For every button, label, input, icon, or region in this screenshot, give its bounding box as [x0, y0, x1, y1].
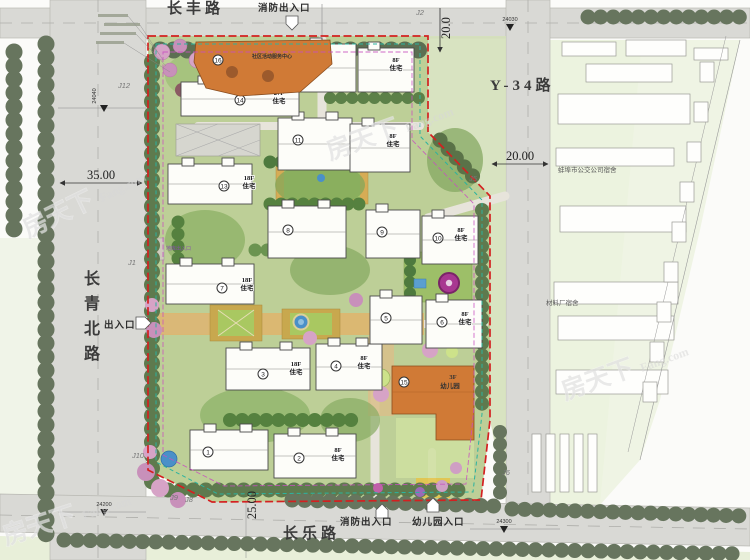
- entrance-label-north-fire: 消防出入口: [258, 2, 311, 14]
- svg-text:8F: 8F: [457, 227, 464, 234]
- junction-j9: J9: [169, 493, 179, 502]
- svg-text:20.0: 20.0: [439, 17, 453, 39]
- svg-text:住宅: 住宅: [241, 283, 255, 292]
- svg-text:25.00: 25.00: [245, 491, 259, 519]
- building-9: 9: [366, 204, 420, 258]
- building-16: 8F 住宅: [358, 42, 414, 92]
- building-3: 3 18F 住宅: [226, 342, 310, 390]
- play-pool: [161, 451, 177, 467]
- kindergarten-label: 幼儿园: [440, 381, 460, 390]
- svg-text:住宅: 住宅: [459, 317, 473, 326]
- svg-text:2: 2: [297, 456, 301, 463]
- svg-text:8F: 8F: [392, 57, 399, 64]
- dim-south: 25.00: [245, 491, 259, 519]
- junction-j5: J5: [468, 174, 478, 183]
- small-pool: [414, 279, 426, 288]
- road-label-east: Y-34路: [490, 76, 554, 94]
- building-13: 13 18F 住宅: [168, 158, 256, 204]
- road-label-south: 长乐路: [283, 524, 340, 542]
- svg-text:13: 13: [220, 184, 228, 191]
- svg-text:北: 北: [84, 320, 100, 338]
- svg-text:住宅: 住宅: [332, 453, 346, 462]
- master-plan-drawing: 蚌埠市公交公司宿舍 材料厂宿舍 1 2 8F 住宅 3 18F 住宅: [0, 0, 750, 560]
- svg-text:6: 6: [440, 320, 444, 327]
- building-10: 10 8F 住宅: [422, 210, 478, 264]
- junction-j8: J8: [184, 495, 194, 504]
- svg-text:10: 10: [434, 236, 442, 243]
- svg-text:7: 7: [220, 286, 224, 293]
- neighbor-label-bus-dorm: 蚌埠市公交公司宿舍: [558, 165, 617, 174]
- svg-text:住宅: 住宅: [290, 367, 304, 376]
- entrance-label-kindergarten: 幼儿园入口: [412, 516, 465, 528]
- svg-text:住宅: 住宅: [455, 233, 469, 242]
- building-5: 5: [370, 290, 422, 344]
- svg-text:青: 青: [84, 294, 100, 313]
- junction-j6: J6: [501, 468, 511, 477]
- svg-text:1: 1: [206, 450, 210, 457]
- svg-text:8F: 8F: [334, 447, 341, 454]
- junction-j2: J2: [415, 8, 425, 17]
- svg-text:住宅: 住宅: [358, 361, 372, 370]
- junction-j1: J1: [127, 258, 136, 267]
- svg-text:20.00: 20.00: [506, 149, 534, 163]
- playground-ring: [439, 273, 459, 293]
- svg-text:15: 15: [400, 380, 408, 387]
- building-2: 2 8F 住宅: [274, 428, 356, 478]
- svg-text:住宅: 住宅: [243, 181, 257, 190]
- svg-text:8: 8: [286, 228, 290, 235]
- site-plan: 蚌埠市公交公司宿舍 材料厂宿舍 1 2 8F 住宅 3 18F 住宅: [0, 0, 750, 560]
- junction-j12: J12: [117, 81, 131, 90]
- svg-text:8F: 8F: [360, 355, 367, 362]
- svg-text:18F: 18F: [244, 175, 255, 182]
- parking-area: [176, 124, 260, 156]
- building-7: 7 18F 住宅: [166, 258, 254, 304]
- svg-text:18F: 18F: [291, 361, 302, 368]
- svg-text:长: 长: [84, 269, 101, 288]
- community-center-label: 社区活动服务中心: [251, 53, 292, 60]
- svg-text:24300: 24300: [496, 519, 511, 525]
- svg-text:24030: 24030: [502, 17, 517, 23]
- building-1: 1: [190, 424, 268, 470]
- building-8: 8: [268, 200, 346, 258]
- svg-text:住宅: 住宅: [273, 96, 287, 105]
- road-label-north: 长丰路: [167, 0, 224, 17]
- building-4: 4 8F 住宅: [316, 338, 382, 390]
- garage-entrance-label: 地库出入口: [166, 245, 191, 252]
- neighbor-label-material-dorm: 材料厂宿舍: [546, 298, 579, 307]
- svg-text:5: 5: [384, 316, 388, 323]
- svg-text:14: 14: [236, 98, 244, 105]
- kindergarten-floors: 3F: [449, 374, 456, 381]
- entrance-label-west: 出入口: [104, 319, 136, 331]
- svg-text:16: 16: [214, 58, 222, 65]
- svg-text:8F: 8F: [461, 311, 468, 318]
- svg-text:24040: 24040: [92, 88, 98, 103]
- svg-text:9: 9: [380, 230, 384, 237]
- entrance-label-south-fire: 消防出入口: [340, 516, 393, 528]
- svg-text:11: 11: [295, 138, 302, 145]
- svg-text:18F: 18F: [242, 277, 253, 284]
- svg-text:3: 3: [261, 372, 265, 379]
- svg-text:路: 路: [84, 344, 101, 363]
- svg-text:住宅: 住宅: [390, 63, 404, 72]
- junction-j10: J10: [131, 451, 145, 460]
- svg-text:4: 4: [334, 364, 338, 371]
- svg-text:35.00: 35.00: [87, 168, 115, 182]
